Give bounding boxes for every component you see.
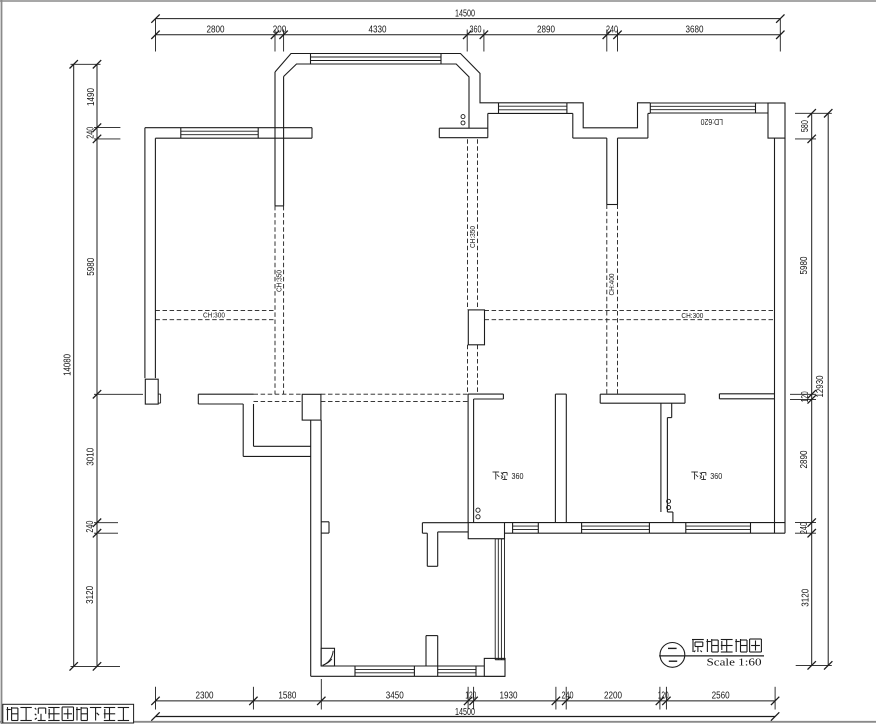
svg-text:2800: 2800	[207, 24, 225, 35]
svg-text:240: 240	[606, 24, 618, 35]
svg-text:360: 360	[470, 24, 482, 35]
svg-text:120: 120	[800, 391, 811, 402]
svg-text:12930: 12930	[815, 375, 826, 397]
svg-text:120: 120	[465, 691, 476, 702]
svg-text:2560: 2560	[712, 691, 730, 702]
svg-text:3120: 3120	[85, 586, 96, 604]
svg-text:14500: 14500	[455, 707, 475, 718]
svg-text:3680: 3680	[686, 24, 704, 35]
svg-text:200: 200	[273, 24, 287, 35]
svg-text:360: 360	[710, 471, 722, 481]
svg-text:240: 240	[85, 520, 96, 532]
svg-text:CH:350: CH:350	[275, 270, 284, 292]
svg-text:5980: 5980	[86, 257, 97, 275]
svg-text:Scale 1:60: Scale 1:60	[707, 657, 762, 668]
svg-text:3010: 3010	[86, 447, 97, 465]
svg-text:240: 240	[562, 691, 574, 702]
svg-text:2300: 2300	[196, 691, 214, 702]
svg-text:1490: 1490	[86, 88, 97, 106]
svg-text:3450: 3450	[386, 691, 404, 702]
svg-text:CH:400: CH:400	[607, 274, 616, 296]
svg-text:2200: 2200	[604, 691, 622, 702]
svg-text:240: 240	[799, 522, 810, 534]
svg-text:CH:350: CH:350	[468, 226, 477, 248]
svg-text:3120: 3120	[801, 588, 812, 606]
svg-text:1580: 1580	[278, 691, 296, 702]
svg-text:120: 120	[658, 691, 669, 702]
svg-text:2890: 2890	[537, 24, 555, 35]
svg-text:1930: 1930	[500, 691, 518, 702]
svg-text:5980: 5980	[799, 256, 810, 274]
svg-text:14080: 14080	[63, 354, 74, 376]
svg-text:360: 360	[512, 471, 524, 481]
svg-text:580: 580	[800, 120, 811, 132]
svg-text:CH:300: CH:300	[681, 311, 703, 320]
svg-text:240: 240	[85, 126, 96, 138]
svg-text:14500: 14500	[455, 9, 475, 20]
svg-text:LD:620: LD:620	[700, 117, 723, 127]
svg-text:4330: 4330	[369, 24, 387, 35]
svg-text:2890: 2890	[799, 450, 810, 468]
svg-text:CH:300: CH:300	[203, 311, 225, 320]
